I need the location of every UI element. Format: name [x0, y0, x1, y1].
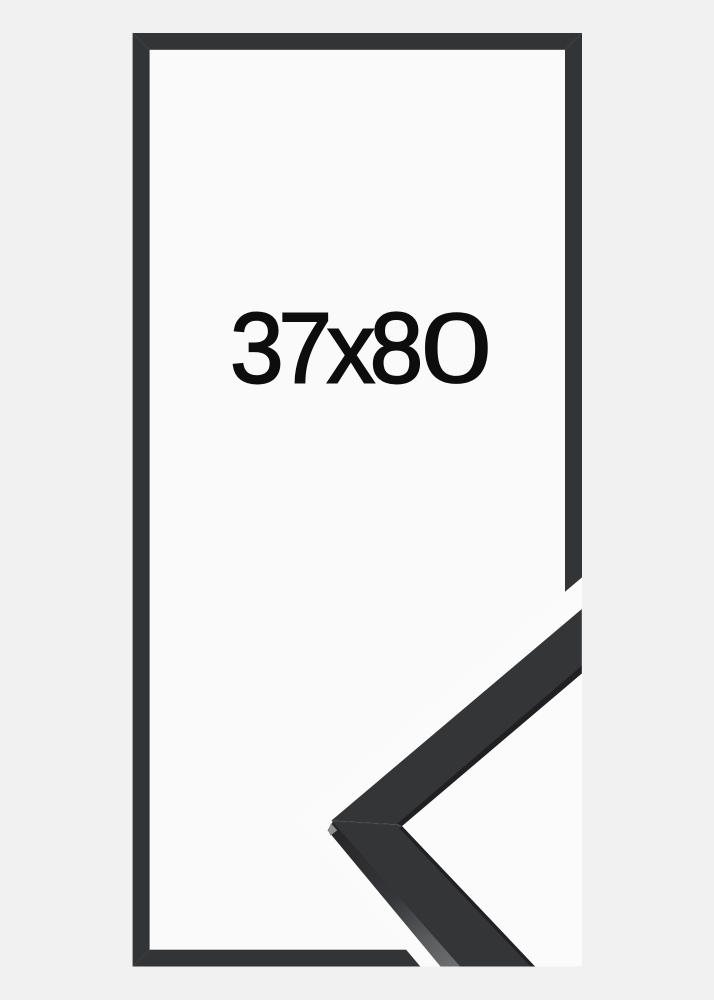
svg-text:0: 0 — [421, 293, 493, 404]
svg-text:37x8: 37x8 — [230, 292, 420, 404]
